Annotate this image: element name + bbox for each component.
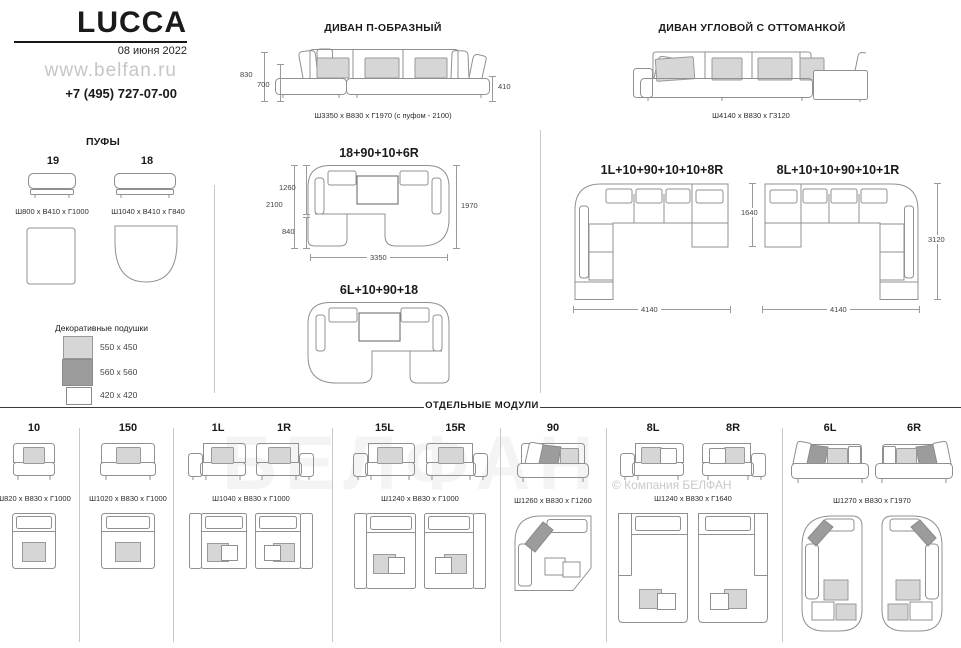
corner-sofa-dims: Ш4140 х В830 х Г3120 xyxy=(632,111,870,120)
module-15L-front-view xyxy=(351,439,419,485)
config-corner2-dim-width: 4140 xyxy=(827,305,850,314)
module-6R-front-view xyxy=(873,439,955,487)
module-1L-top-view xyxy=(188,512,248,570)
config-corner2-top-view xyxy=(762,180,920,301)
pouf-18-label: 18 xyxy=(130,155,164,167)
config-u1-top-view xyxy=(307,163,450,249)
module-divider-6 xyxy=(782,428,783,642)
module-6L-front-view xyxy=(789,439,871,487)
module-10-front-view xyxy=(11,439,57,485)
pillows-title: Декоративные подушки xyxy=(55,323,148,333)
module-1L-front-view xyxy=(186,439,250,485)
config-u1-dim-depth: 2100 xyxy=(266,200,283,209)
module-150-top-view xyxy=(100,512,156,570)
config-corner2-title: 8L+10+10+90+10+1R xyxy=(768,163,908,177)
module-8L-label: 8L xyxy=(647,422,660,434)
catalog-page: LUCCA 08 июня 2022 www.belfan.ru +7 (495… xyxy=(0,0,961,648)
module-15R-label: 15R xyxy=(445,422,465,434)
modules-title: ОТДЕЛЬНЫЕ МОДУЛИ xyxy=(424,400,540,411)
pillow-size-3: 420 x 420 xyxy=(100,390,137,400)
corner-sofa-title: ДИВАН УГЛОВОЙ С ОТТОМАНКОЙ xyxy=(632,22,872,34)
pouf-19-label: 19 xyxy=(36,155,70,167)
config-u1-dim-right: 1970 xyxy=(461,201,478,210)
module-10-label: 10 xyxy=(28,422,40,434)
module-8R-front-view xyxy=(698,439,768,485)
module-8L-front-view xyxy=(618,439,688,485)
module-group-6L-6R: 6L 6R xyxy=(790,422,954,632)
u-sofa-dim-arm: 410 xyxy=(498,82,511,91)
u-sofa-dimline-seat xyxy=(280,64,281,102)
config-u1-dim-lower: 840 xyxy=(282,227,295,236)
modules-divider-right xyxy=(540,407,961,408)
config-u1-dimline-lower xyxy=(306,217,307,249)
module-6R-label: 6R xyxy=(907,422,921,434)
pouf-19-dims: Ш800 х В410 х Г1000 xyxy=(13,207,91,216)
module-group-150: 150 Ш1020 х В830 х Г1000 xyxy=(96,422,160,570)
module-150-dims: Ш1020 х В830 х Г1000 xyxy=(89,494,167,503)
module-6L-6R-dims: Ш1270 х В830 х Г1970 xyxy=(833,496,911,505)
module-6R-top-view xyxy=(880,514,944,632)
u-sofa-dim-seat: 700 xyxy=(257,80,270,89)
module-group-1L-1R: 1L 1R Ш1040 х В8 xyxy=(186,422,316,570)
module-divider-1 xyxy=(79,428,80,642)
module-divider-5 xyxy=(606,428,607,642)
poufs-title: ПУФЫ xyxy=(55,136,151,148)
module-divider-4 xyxy=(500,428,501,642)
config-corner1-dim-right: 1640 xyxy=(738,208,761,217)
pillow-swatch-light xyxy=(63,336,93,359)
module-8R-top-view xyxy=(697,512,769,624)
config-u1-dimline-upper xyxy=(306,165,307,215)
config-u1-title: 18+90+10+6R xyxy=(309,146,449,160)
pillow-swatch-white xyxy=(66,387,92,405)
module-1R-front-view xyxy=(252,439,316,485)
u-sofa-dimline-back xyxy=(264,52,265,102)
brand-logo: LUCCA xyxy=(10,6,187,40)
u-sofa-title: ДИВАН П-ОБРАЗНЫЙ xyxy=(283,22,483,34)
brand-underline xyxy=(14,41,187,43)
module-group-8L-8R: 8L 8R xyxy=(614,422,772,624)
module-15L-label: 15L xyxy=(375,422,394,434)
module-90-dims: Ш1260 х В830 х Г1260 xyxy=(514,496,592,505)
module-divider-2 xyxy=(173,428,174,642)
module-6L-label: 6L xyxy=(824,422,837,434)
config-u2-top-view xyxy=(307,300,450,386)
module-10-dims: Ш820 х В830 х Г1000 xyxy=(0,494,71,503)
module-8L-8R-dims: Ш1240 х В830 х Г1640 xyxy=(654,494,732,503)
module-10-top-view xyxy=(11,512,57,570)
module-1L-1R-dims: Ш1040 х В830 х Г1000 xyxy=(212,494,290,503)
module-1R-label: 1R xyxy=(277,422,291,434)
u-sofa-dim-back: 830 xyxy=(240,70,253,79)
divider-poufs xyxy=(214,185,215,393)
module-90-label: 90 xyxy=(547,422,559,434)
corner-sofa-front-view xyxy=(632,48,870,104)
pouf-18-top-view xyxy=(113,224,179,284)
module-6L-top-view xyxy=(800,514,864,632)
module-group-10: 10 Ш820 х В830 х Г1000 xyxy=(2,422,66,570)
phone-number: +7 (495) 727-07-00 xyxy=(10,86,177,101)
config-corner2-dim-right: 3120 xyxy=(925,235,948,244)
module-8R-label: 8R xyxy=(726,422,740,434)
module-90-front-view xyxy=(515,439,591,487)
module-150-front-view xyxy=(98,439,158,485)
module-15L-top-view xyxy=(353,512,417,590)
module-group-15L-15R: 15L 15R Ш1240 х xyxy=(350,422,490,590)
date-label: 08 июня 2022 xyxy=(10,45,187,57)
pillow-size-1: 550 x 450 xyxy=(100,342,137,352)
config-u1-dim-upper: 1260 xyxy=(279,183,296,192)
module-15R-front-view xyxy=(422,439,490,485)
module-8L-top-view xyxy=(617,512,689,624)
u-sofa-dims: Ш3350 х В830 х Г1970 (с пуфом - 2100) xyxy=(263,111,503,120)
u-sofa-dimline-arm xyxy=(492,76,493,102)
pouf-18-front-view xyxy=(112,171,178,200)
divider-center-right xyxy=(540,130,541,393)
config-u2-title: 6L+10+90+18 xyxy=(309,283,449,297)
config-corner1-title: 1L+10+90+10+10+8R xyxy=(592,163,732,177)
module-divider-3 xyxy=(332,428,333,642)
config-corner1-dim-width: 4140 xyxy=(638,305,661,314)
config-u1-dimline-depth xyxy=(294,165,295,249)
u-sofa-front-view xyxy=(273,46,493,102)
modules-divider-left xyxy=(0,407,424,408)
module-15R-top-view xyxy=(423,512,487,590)
pillow-swatch-dark xyxy=(62,359,93,386)
module-1R-top-view xyxy=(254,512,314,570)
pillow-size-2: 560 x 560 xyxy=(100,367,137,377)
pouf-19-top-view xyxy=(25,226,77,286)
module-1L-label: 1L xyxy=(212,422,225,434)
config-u1-dim-width: 3350 xyxy=(367,253,390,262)
website-link[interactable]: www.belfan.ru xyxy=(10,60,177,82)
module-90-top-view xyxy=(513,514,593,592)
config-corner1-top-view xyxy=(573,180,731,301)
module-15L-15R-dims: Ш1240 х В830 х Г1000 xyxy=(381,494,459,503)
module-group-90: 90 Ш1260 х В830 х Г1260 xyxy=(510,422,596,592)
config-u1-dimline-right xyxy=(456,165,457,249)
pouf-18-dims: Ш1040 х В410 х Г840 xyxy=(109,207,187,216)
pouf-19-front-view xyxy=(26,171,78,200)
module-150-label: 150 xyxy=(119,422,137,434)
